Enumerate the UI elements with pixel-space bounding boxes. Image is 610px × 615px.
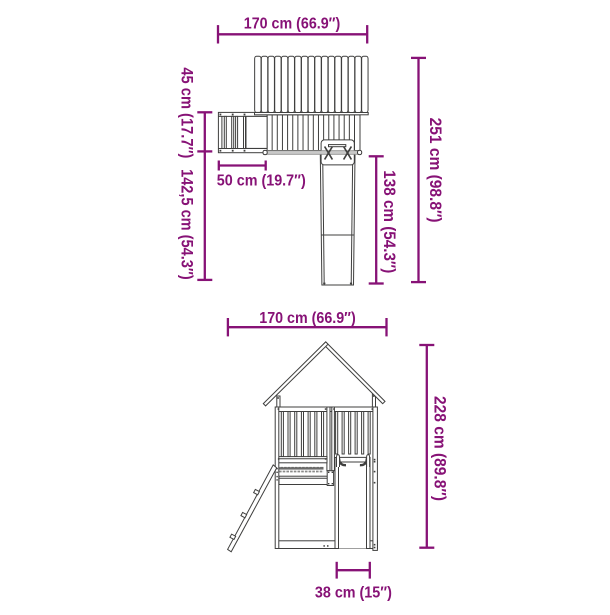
svg-text:138 cm (54.3″): 138 cm (54.3″) bbox=[380, 170, 399, 273]
svg-text:251 cm (98.8″): 251 cm (98.8″) bbox=[426, 118, 445, 223]
svg-text:170 cm (66.9″): 170 cm (66.9″) bbox=[259, 310, 356, 327]
svg-text:142,5 cm (54.3″): 142,5 cm (54.3″) bbox=[178, 169, 197, 280]
svg-text:170 cm (66.9″): 170 cm (66.9″) bbox=[244, 16, 341, 33]
svg-text:45 cm (17.7″): 45 cm (17.7″) bbox=[178, 67, 197, 158]
svg-text:50 cm (19.7″): 50 cm (19.7″) bbox=[217, 172, 306, 189]
svg-text:228 cm (89.8″): 228 cm (89.8″) bbox=[431, 396, 450, 501]
svg-text:38 cm (15″): 38 cm (15″) bbox=[315, 585, 392, 602]
